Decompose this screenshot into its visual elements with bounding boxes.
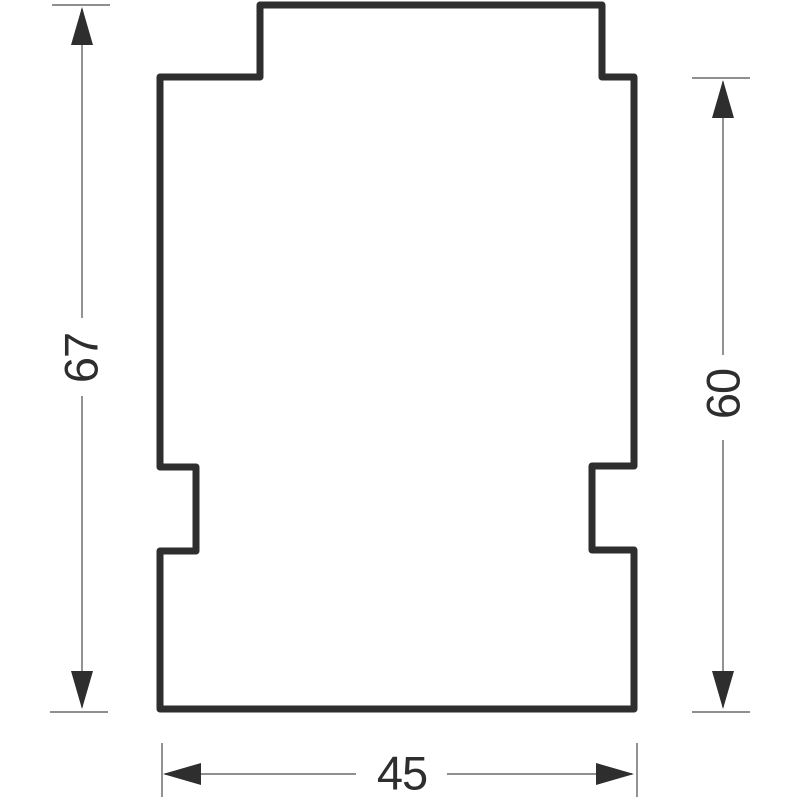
arrowhead-down	[712, 671, 734, 709]
dimension-left: 67	[50, 5, 110, 712]
arrowhead-up	[712, 80, 734, 118]
dimension-label-overall-height: 67	[55, 333, 108, 383]
arrowhead-up	[71, 7, 93, 45]
arrowhead-down	[71, 671, 93, 709]
drawing-canvas: 67 60 45	[0, 0, 800, 800]
dimension-label-body-height: 60	[697, 369, 750, 419]
dimension-right: 60	[692, 78, 750, 712]
technical-drawing: 67 60 45	[0, 0, 800, 800]
arrowhead-right	[596, 763, 634, 785]
arrowhead-left	[163, 763, 201, 785]
dimension-label-overall-width: 45	[377, 747, 427, 800]
dimension-bottom: 45	[162, 743, 637, 800]
part-outline	[160, 5, 634, 709]
